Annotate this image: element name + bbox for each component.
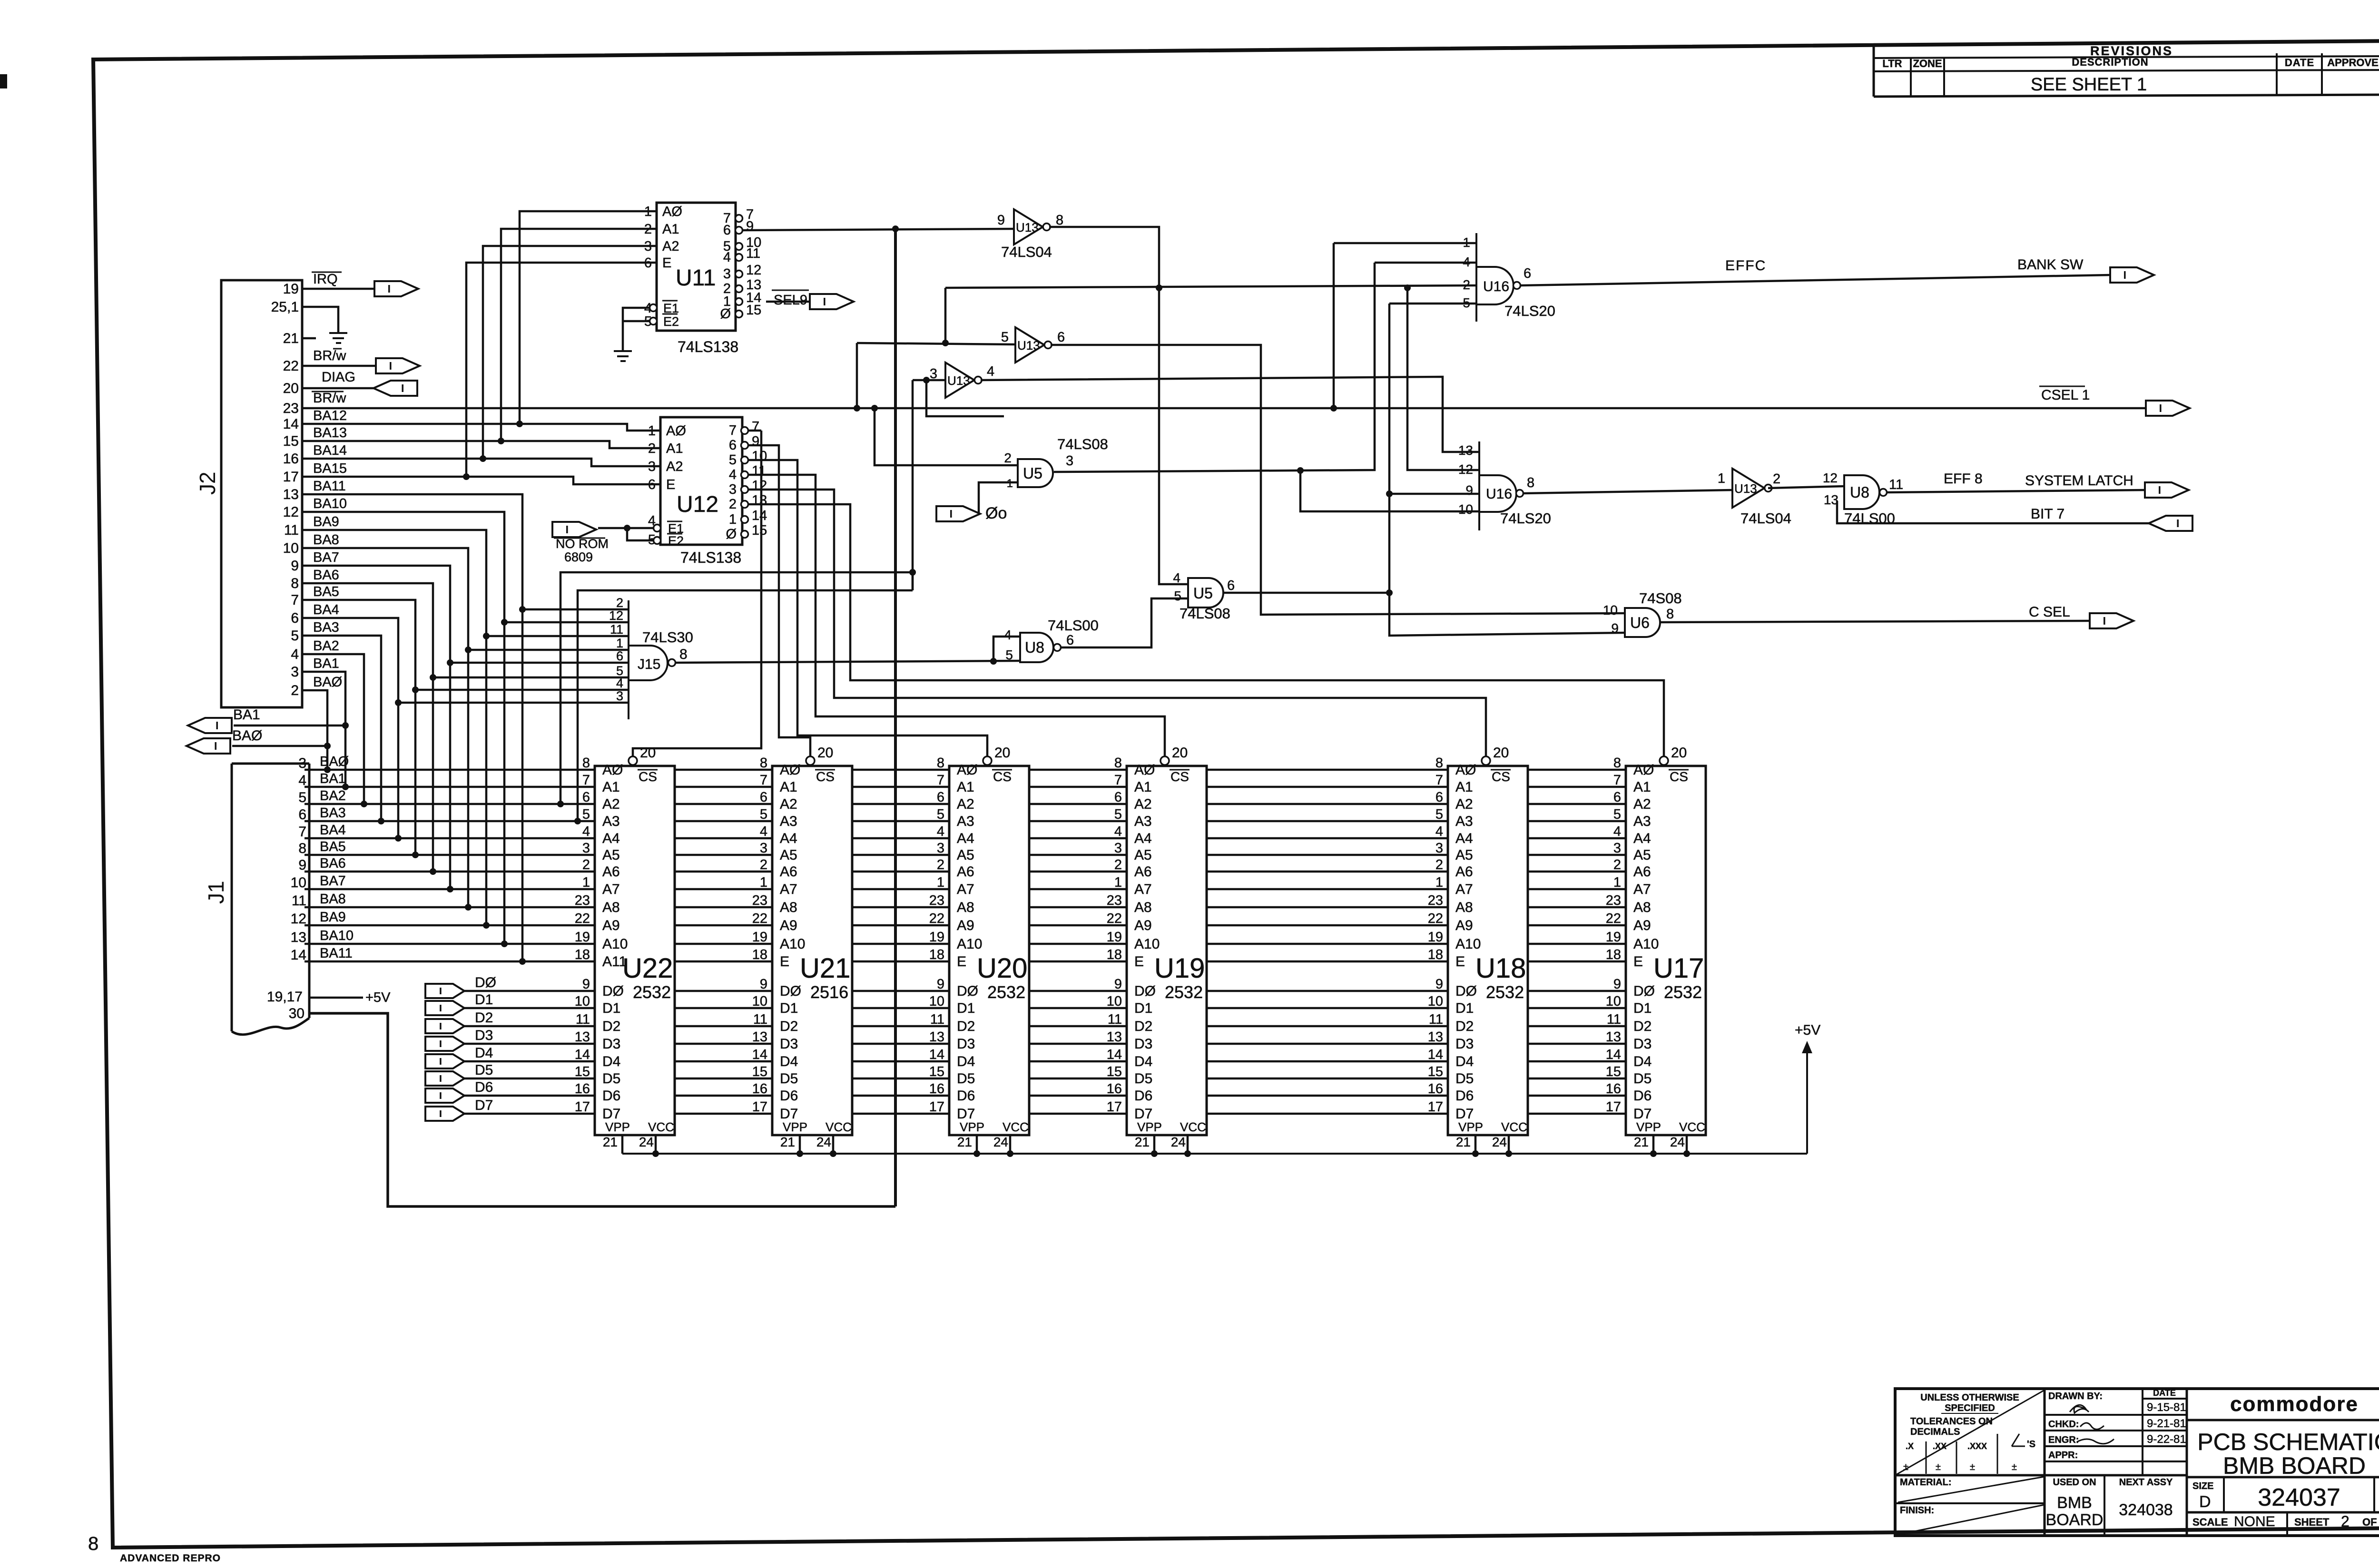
svg-text:D5: D5 [957,1071,975,1087]
svg-text:74LS138: 74LS138 [678,338,738,355]
svg-text:BA2: BA2 [313,638,339,654]
svg-text:SHEET: SHEET [2294,1516,2330,1528]
svg-text:7: 7 [291,592,299,608]
svg-text:23: 23 [1606,893,1621,908]
svg-text:8: 8 [679,647,688,662]
svg-text:TOLERANCES ON: TOLERANCES ON [1910,1416,1993,1427]
svg-text:10: 10 [283,540,299,556]
svg-text:SEE SHEET 1: SEE SHEET 1 [2031,75,2147,95]
svg-text:A9: A9 [1134,918,1152,933]
svg-text:A2: A2 [666,459,683,474]
svg-text:13: 13 [283,487,299,502]
svg-text:2516: 2516 [810,982,848,1002]
svg-text:13: 13 [1107,1029,1122,1045]
svg-text:D4: D4 [475,1045,493,1061]
svg-text:D1: D1 [1633,1000,1652,1016]
svg-text:23: 23 [929,893,944,908]
svg-text:A7: A7 [602,882,620,897]
svg-text:VCC: VCC [826,1120,852,1134]
svg-text:BMB BOARD: BMB BOARD [2223,1452,2366,1479]
svg-text:1: 1 [582,875,590,890]
svg-text:30: 30 [289,1006,305,1021]
svg-text:Ø: Ø [726,527,737,542]
svg-text:D5: D5 [1633,1071,1652,1087]
svg-text:9: 9 [1114,977,1122,992]
svg-text:5: 5 [1114,807,1122,822]
svg-text:3: 3 [582,841,590,856]
svg-text:SIZE: SIZE [2192,1481,2213,1491]
svg-text:A2: A2 [662,239,679,254]
svg-text:VCC: VCC [1180,1120,1206,1134]
svg-text:BMB: BMB [2057,1494,2092,1512]
svg-text:3: 3 [648,459,656,474]
svg-text:21: 21 [603,1135,618,1149]
svg-text:12: 12 [609,608,623,623]
svg-text:A3: A3 [957,813,974,829]
svg-text:14: 14 [1428,1047,1443,1062]
svg-text:D4: D4 [1455,1054,1474,1069]
svg-text:24: 24 [1171,1135,1186,1149]
svg-text:BR/w: BR/w [313,391,346,406]
svg-text:U18: U18 [1475,953,1526,984]
svg-text:J2: J2 [195,471,220,495]
svg-text:VPP: VPP [1636,1120,1661,1134]
svg-text:7: 7 [752,419,759,434]
svg-text:E2: E2 [668,534,684,548]
svg-text:J15: J15 [638,657,660,672]
svg-text:74LS04: 74LS04 [1740,510,1791,527]
svg-text:DØ: DØ [1633,983,1655,999]
svg-text:9: 9 [1435,977,1443,992]
svg-text:5: 5 [298,790,306,805]
svg-text:A2: A2 [602,796,620,812]
svg-text:A10: A10 [602,936,628,952]
svg-text:A1: A1 [602,779,620,795]
svg-text:74LS00: 74LS00 [1048,617,1099,634]
svg-text:9: 9 [997,213,1005,228]
svg-text:A4: A4 [957,831,974,846]
svg-text:A1: A1 [1455,779,1473,795]
svg-text:74LS20: 74LS20 [1504,303,1555,319]
svg-text:2532: 2532 [987,982,1025,1002]
svg-text:3: 3 [723,266,731,282]
svg-text:23: 23 [1428,893,1443,908]
svg-text:BA10: BA10 [313,496,347,511]
svg-text:A10: A10 [1633,936,1659,952]
svg-text:A2: A2 [1455,796,1473,812]
svg-text:16: 16 [1107,1081,1122,1097]
svg-text:NONE: NONE [2234,1514,2275,1529]
svg-text:15: 15 [752,523,767,538]
svg-text:A2: A2 [1633,796,1651,812]
svg-text:1: 1 [729,512,737,527]
svg-text:A6: A6 [780,864,797,880]
svg-text:6809: 6809 [564,550,593,564]
svg-text:A5: A5 [602,847,620,863]
svg-text:4: 4 [760,824,767,839]
svg-text:11: 11 [576,1012,590,1027]
svg-text:6: 6 [644,255,652,271]
svg-text:2: 2 [648,441,656,456]
svg-text:21: 21 [1634,1135,1649,1149]
svg-text:D6: D6 [1633,1088,1652,1104]
svg-text:5: 5 [1613,807,1621,822]
svg-text:6: 6 [1613,790,1621,805]
svg-text:10: 10 [1606,994,1621,1009]
svg-text:13: 13 [929,1029,944,1045]
svg-text:17: 17 [283,469,299,485]
svg-text:74LS20: 74LS20 [1500,510,1551,527]
svg-text:6: 6 [1435,790,1443,805]
svg-text:CS: CS [816,769,835,784]
svg-text:A3: A3 [1633,813,1651,829]
svg-text:D2: D2 [1134,1019,1152,1034]
svg-text:A8: A8 [780,900,797,915]
svg-text:UNLESS OTHERWISE: UNLESS OTHERWISE [1920,1392,2019,1403]
svg-text:8: 8 [291,576,299,591]
svg-text:VPP: VPP [783,1120,807,1134]
svg-text:D3: D3 [1455,1036,1474,1052]
svg-text:BAØ: BAØ [232,728,262,744]
svg-text:4: 4 [291,647,299,662]
svg-text:17: 17 [1428,1099,1443,1115]
svg-text:14: 14 [575,1047,590,1062]
svg-text:A10: A10 [1455,936,1481,952]
svg-text:E: E [957,954,966,970]
svg-text:IRQ: IRQ [313,272,338,287]
svg-text:U16: U16 [1486,486,1512,502]
svg-text:VCC: VCC [1003,1120,1029,1134]
svg-text:9: 9 [1613,977,1621,992]
svg-text:U13: U13 [1016,220,1039,235]
svg-text:2: 2 [616,596,623,610]
svg-text:16: 16 [1428,1081,1443,1097]
svg-text:U20: U20 [977,953,1027,984]
svg-text:A6: A6 [957,864,974,880]
svg-text:20: 20 [283,381,299,396]
svg-text:11: 11 [610,622,623,637]
svg-text:23: 23 [1107,893,1122,908]
svg-text:11: 11 [284,522,299,538]
svg-text:7: 7 [582,773,590,788]
svg-text:8: 8 [582,755,590,771]
svg-text:19: 19 [1606,930,1621,945]
svg-text:ENGR:: ENGR: [2048,1435,2079,1445]
svg-text:CS: CS [1492,769,1510,784]
svg-text:13: 13 [752,493,767,508]
svg-text:D6: D6 [957,1088,975,1104]
svg-text:A7: A7 [1134,882,1152,897]
svg-text:6: 6 [648,477,656,492]
svg-text:CS: CS [1670,769,1688,784]
svg-text:13: 13 [1458,443,1473,458]
svg-text:12: 12 [1823,470,1838,485]
svg-text:9: 9 [760,977,767,992]
svg-text:BA3: BA3 [313,620,339,635]
svg-text:U13: U13 [1017,338,1040,353]
svg-text:D1: D1 [475,992,493,1008]
svg-text:24: 24 [639,1135,654,1149]
svg-text:D3: D3 [602,1036,620,1052]
svg-text:24: 24 [993,1135,1008,1149]
svg-text:DØ: DØ [957,983,978,999]
svg-text:U11: U11 [676,265,716,291]
svg-text:A7: A7 [957,882,974,897]
svg-text:BIT 7: BIT 7 [2031,506,2064,522]
svg-text:D6: D6 [475,1079,493,1095]
svg-text:DØ: DØ [475,975,496,990]
svg-text:2: 2 [291,683,299,698]
svg-text:5: 5 [760,807,767,822]
svg-text:15: 15 [746,303,761,318]
svg-text:BA11: BA11 [320,946,353,961]
svg-text:6: 6 [616,649,623,663]
svg-text:commodore: commodore [2230,1392,2359,1416]
svg-text:A6: A6 [1134,864,1152,880]
svg-text:15: 15 [1606,1064,1621,1079]
svg-text:74LS08: 74LS08 [1057,436,1108,452]
svg-text:DØ: DØ [1455,983,1477,999]
svg-text:USED ON: USED ON [2053,1477,2096,1488]
svg-text:5: 5 [1005,647,1013,662]
svg-text:A3: A3 [602,813,620,829]
svg-text:1: 1 [1718,471,1725,486]
svg-text:13: 13 [752,1029,767,1045]
svg-text:21: 21 [283,331,299,346]
svg-text:U13: U13 [947,373,970,388]
svg-text:20: 20 [994,745,1010,761]
svg-text:PCB SCHEMATIC: PCB SCHEMATIC [2197,1429,2379,1455]
svg-text:14: 14 [929,1047,944,1062]
svg-text:3: 3 [1435,841,1443,856]
svg-text:BA2: BA2 [320,788,346,804]
svg-text:2532: 2532 [1664,982,1702,1002]
svg-text:11: 11 [1607,1012,1621,1027]
svg-text:U12: U12 [677,492,718,517]
svg-text:21: 21 [780,1135,795,1149]
svg-text:3: 3 [291,664,299,680]
svg-text:A2: A2 [957,796,974,812]
svg-text:A9: A9 [1455,918,1473,933]
svg-text:AØ: AØ [1455,762,1476,778]
svg-text:A1: A1 [780,779,797,795]
svg-text:D1: D1 [780,1000,798,1016]
svg-text:U8: U8 [1025,639,1044,656]
svg-text:VCC: VCC [1679,1120,1705,1134]
svg-text:16: 16 [283,451,299,467]
svg-text:22: 22 [1428,911,1443,926]
svg-text:18: 18 [1606,947,1621,962]
svg-text:23: 23 [575,893,590,908]
svg-text:4: 4 [1613,824,1621,839]
svg-text:6: 6 [1227,578,1235,593]
svg-text:2: 2 [1773,471,1780,487]
svg-text:DØ: DØ [602,983,624,999]
svg-text:AØ: AØ [662,204,682,219]
svg-text:6: 6 [723,223,731,238]
svg-text:12: 12 [291,911,306,927]
svg-text:A8: A8 [1455,900,1473,915]
svg-text:A10: A10 [1134,936,1160,952]
svg-text:8: 8 [760,755,767,771]
svg-text:BA11: BA11 [313,479,346,494]
svg-text:BA7: BA7 [320,873,346,889]
svg-text:2: 2 [729,497,737,512]
svg-text:4: 4 [1173,570,1180,585]
svg-text:7: 7 [1613,773,1621,788]
svg-text:19: 19 [575,930,590,945]
svg-text:2: 2 [644,222,652,237]
svg-text:DØ: DØ [1134,983,1156,999]
svg-text:6: 6 [291,610,299,626]
svg-text:15: 15 [752,1064,767,1079]
svg-text:BA9: BA9 [313,514,339,529]
svg-text:BA13: BA13 [313,425,347,441]
svg-text:A4: A4 [1134,831,1152,846]
svg-text:APPR:: APPR: [2048,1450,2078,1460]
svg-text:10: 10 [1107,994,1122,1009]
svg-text:6: 6 [729,438,737,453]
svg-text:DRAWN BY:: DRAWN BY: [2048,1391,2103,1401]
svg-text:VCC: VCC [1501,1120,1527,1134]
svg-text:19: 19 [752,930,767,945]
svg-text:11: 11 [753,1012,767,1027]
svg-text:10: 10 [1428,994,1443,1009]
svg-text:18: 18 [1107,947,1122,962]
svg-text:4: 4 [937,824,944,839]
svg-text:D4: D4 [1633,1054,1652,1069]
svg-text:E: E [662,255,671,271]
svg-text:BANK SW: BANK SW [2017,257,2084,273]
svg-text:2: 2 [2341,1513,2350,1530]
svg-text:11: 11 [1108,1012,1122,1027]
svg-text:1: 1 [937,875,944,890]
svg-text:D: D [2199,1493,2211,1511]
svg-text:+5V: +5V [1795,1022,1820,1038]
svg-text:14: 14 [1606,1047,1621,1062]
svg-text:D2: D2 [957,1019,975,1034]
svg-text:D5: D5 [475,1062,493,1078]
svg-text:E2: E2 [663,314,679,329]
svg-text:6: 6 [298,807,306,823]
svg-text:4: 4 [729,467,737,482]
svg-text:Ø: Ø [720,306,731,322]
svg-text:.X: .X [1906,1441,1914,1451]
svg-text:324037: 324037 [2258,1484,2340,1511]
svg-text:SEL9: SEL9 [774,293,807,308]
svg-text:18: 18 [575,947,590,962]
svg-text:8: 8 [88,1533,98,1554]
svg-text:1: 1 [760,875,767,890]
svg-text:D6: D6 [1455,1088,1474,1104]
svg-text:C SEL: C SEL [2029,604,2070,620]
svg-text:8: 8 [1435,755,1443,771]
svg-text:20: 20 [640,745,656,761]
svg-text:15: 15 [575,1064,590,1079]
svg-text:D2: D2 [780,1019,798,1034]
svg-text:19: 19 [1428,930,1443,945]
svg-text:OF: OF [2362,1516,2377,1528]
svg-text:21: 21 [1135,1135,1150,1149]
svg-text:A9: A9 [1633,918,1651,933]
svg-text:U6: U6 [1630,614,1650,631]
svg-text:8: 8 [1114,755,1122,771]
svg-text:23: 23 [752,893,767,908]
svg-text:15: 15 [283,433,299,449]
svg-text:A5: A5 [1134,847,1152,863]
svg-text:U13: U13 [1734,481,1757,496]
svg-text:17: 17 [1606,1099,1621,1115]
svg-text:14: 14 [1107,1047,1122,1062]
svg-text:A3: A3 [1455,813,1473,829]
svg-text:5: 5 [937,807,944,822]
svg-text:22: 22 [575,911,590,926]
svg-text:16: 16 [575,1081,590,1097]
svg-text:74LS08: 74LS08 [1180,605,1230,622]
svg-text:9: 9 [298,857,306,873]
svg-text:A5: A5 [1633,847,1651,863]
svg-text:D1: D1 [1455,1000,1474,1016]
svg-text:BA10: BA10 [320,928,354,943]
svg-text:16: 16 [752,1081,767,1097]
svg-text:2: 2 [1435,857,1443,872]
svg-text:7: 7 [1435,773,1443,788]
svg-text:13: 13 [1606,1029,1621,1045]
svg-text:A7: A7 [780,882,797,897]
svg-text:A5: A5 [780,847,797,863]
svg-text:24: 24 [1492,1135,1507,1149]
svg-text:2532: 2532 [633,982,671,1002]
svg-text:D5: D5 [602,1071,620,1087]
svg-text:3: 3 [729,482,737,497]
svg-text:A10: A10 [780,936,805,952]
svg-text:13: 13 [291,930,306,945]
svg-text:9: 9 [1465,483,1473,498]
svg-text:DECIMALS: DECIMALS [1910,1427,1960,1437]
svg-text:17: 17 [575,1099,590,1115]
svg-text:D5: D5 [1455,1071,1474,1087]
svg-text:CSEL 1: CSEL 1 [2041,387,2090,403]
svg-text:3: 3 [760,841,767,856]
svg-text:CHKD:: CHKD: [2048,1419,2079,1430]
svg-text:18: 18 [752,947,767,962]
svg-text:2: 2 [1463,277,1470,292]
svg-text:SCALE: SCALE [2192,1516,2228,1528]
svg-text:10: 10 [752,449,767,464]
svg-text:VPP: VPP [1137,1120,1162,1134]
svg-text:BA6: BA6 [320,856,346,871]
svg-text:BA6: BA6 [313,568,339,583]
svg-text:5: 5 [1174,588,1181,603]
svg-text:7: 7 [729,423,737,438]
svg-text:8: 8 [1666,607,1674,622]
svg-text:22: 22 [1606,911,1621,926]
svg-text:7: 7 [298,824,306,840]
svg-text:9: 9 [937,977,944,992]
svg-text:U19: U19 [1154,953,1205,984]
svg-text:2532: 2532 [1486,982,1524,1002]
svg-text:A10: A10 [957,936,982,952]
svg-text:3: 3 [937,841,944,856]
svg-text:18: 18 [929,947,944,962]
svg-text:E: E [1633,954,1643,970]
svg-text:324038: 324038 [2119,1501,2173,1519]
svg-text:10: 10 [1603,603,1618,617]
svg-text:11: 11 [1429,1012,1443,1027]
svg-text:3: 3 [644,239,652,254]
svg-text:A9: A9 [780,918,797,933]
svg-text:D6: D6 [780,1088,798,1104]
